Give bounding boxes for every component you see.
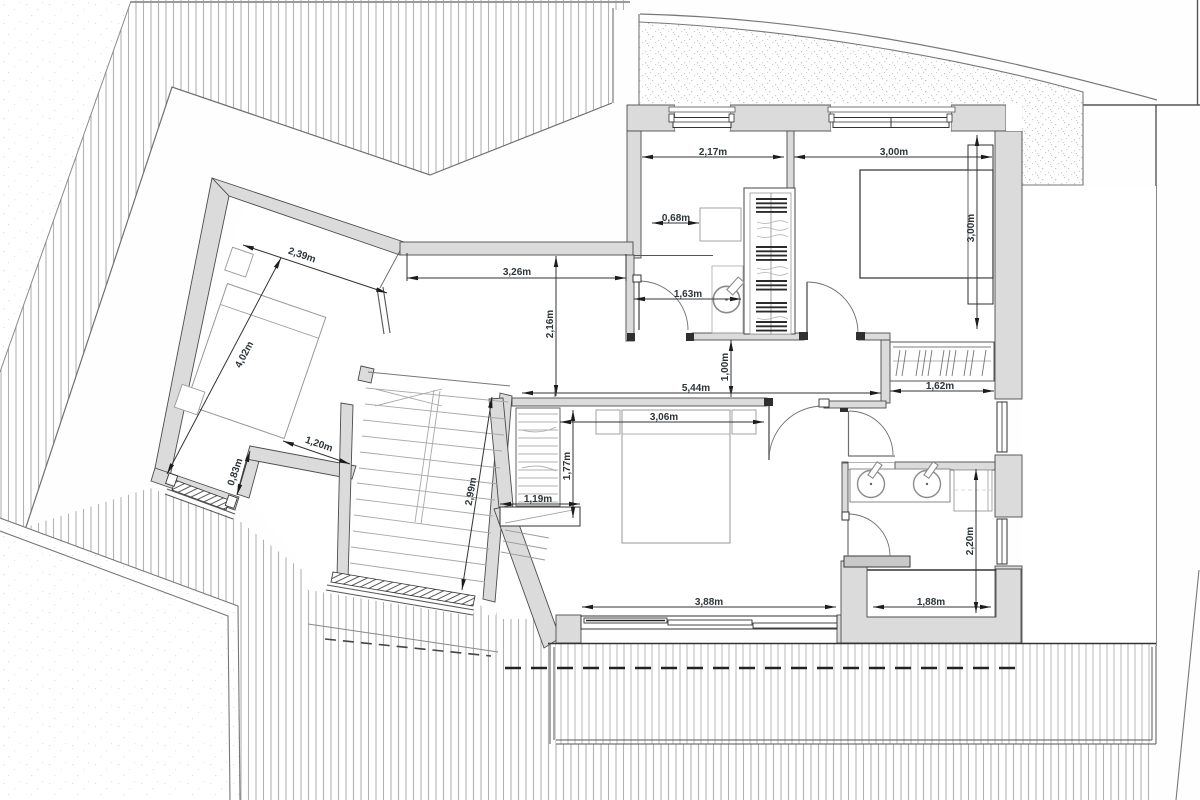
svg-text:2,17m: 2,17m <box>699 147 727 158</box>
svg-text:1,63m: 1,63m <box>674 289 702 300</box>
svg-text:1,77m: 1,77m <box>562 452 573 480</box>
svg-text:2,20m: 2,20m <box>965 527 976 555</box>
svg-text:3,26m: 3,26m <box>503 267 531 278</box>
svg-text:2,16m: 2,16m <box>545 310 556 338</box>
svg-text:1,00m: 1,00m <box>720 353 731 381</box>
svg-text:0,68m: 0,68m <box>662 213 690 224</box>
svg-text:3,88m: 3,88m <box>695 597 723 608</box>
svg-text:3,06m: 3,06m <box>650 412 678 423</box>
svg-text:1,19m: 1,19m <box>524 494 552 505</box>
svg-text:1,88m: 1,88m <box>917 597 945 608</box>
svg-text:3,00m: 3,00m <box>966 214 977 242</box>
svg-text:5,44m: 5,44m <box>682 383 710 394</box>
svg-text:1,62m: 1,62m <box>926 381 954 392</box>
svg-text:3,00m: 3,00m <box>880 147 908 158</box>
